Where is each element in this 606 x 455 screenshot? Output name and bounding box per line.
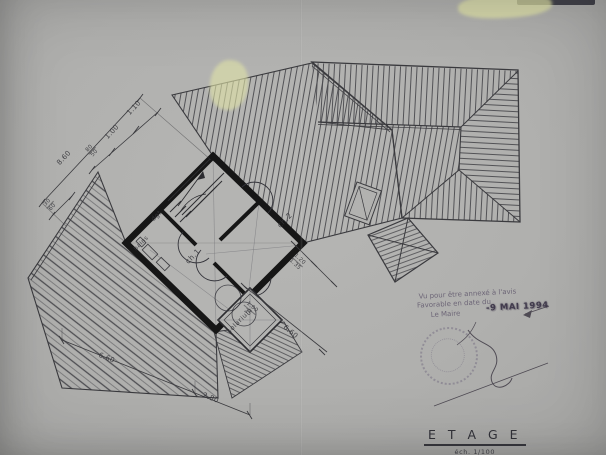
drawing-scale: éch. 1/100 [424, 448, 526, 455]
paper-crease [300, 0, 303, 455]
drawing-title: E T A G E [424, 427, 526, 446]
pyramid-roof [368, 218, 438, 282]
round-stamp-inner-ring [428, 335, 468, 375]
title-block: E T A G E éch. 1/100 [424, 424, 526, 455]
plan-drawing [0, 0, 606, 455]
scanned-plan-document: dgt bains ch.1 ch.2 solarium 1.10 1.00 8… [0, 0, 606, 455]
